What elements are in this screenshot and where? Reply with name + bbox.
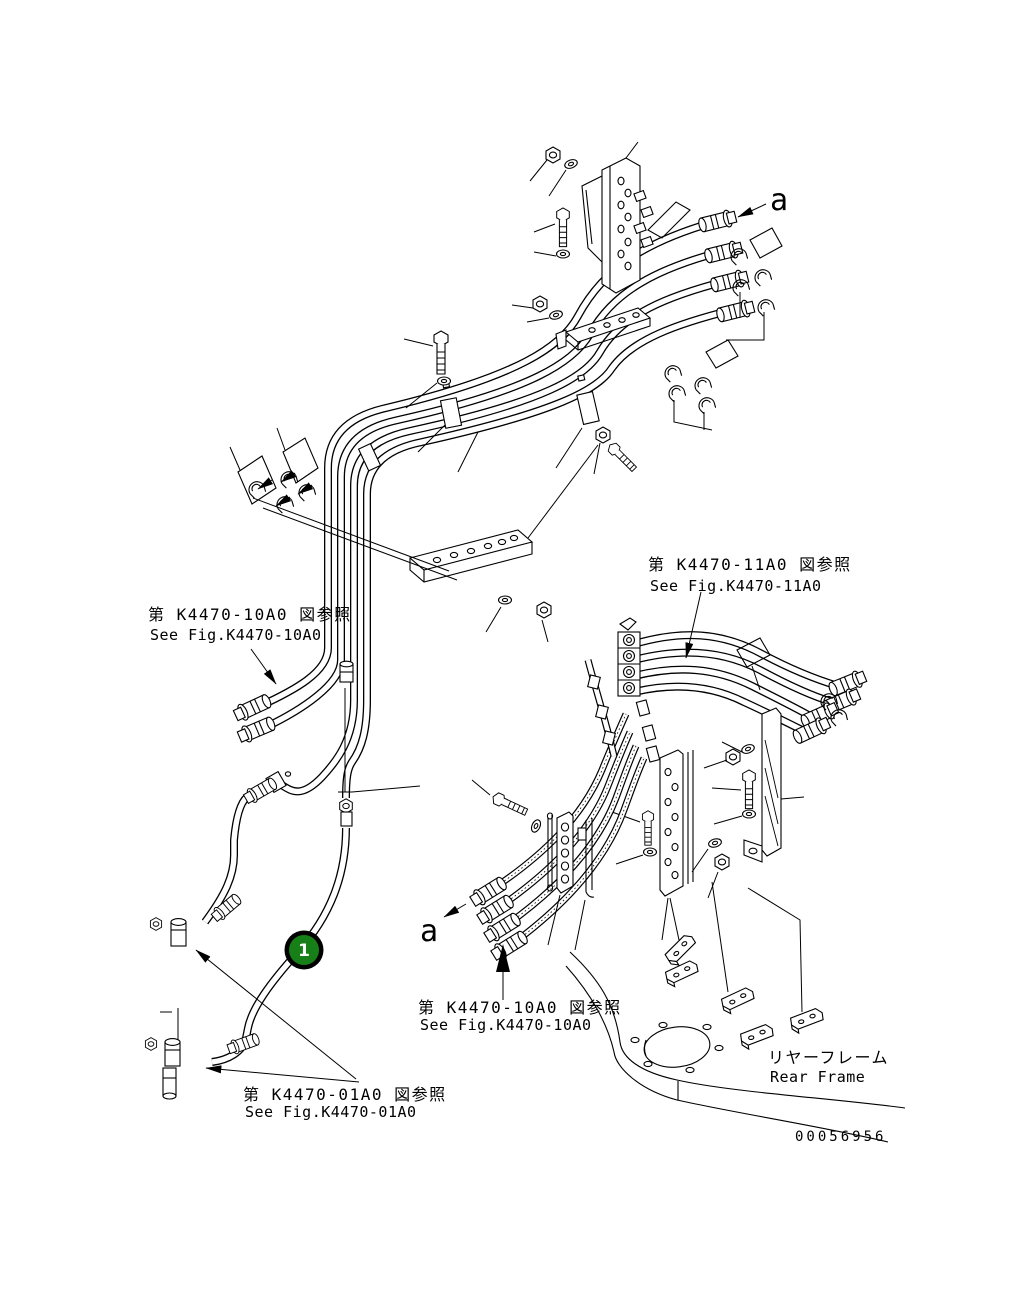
nut: [715, 854, 729, 870]
bolt: [434, 331, 448, 374]
u-clip: [692, 375, 713, 395]
pipe-adapter: [340, 799, 353, 826]
mounting-block: [664, 960, 700, 988]
ref-bottom-center-label-jp: 第 K4470-10A0 図参照: [418, 998, 622, 1017]
washer: [743, 810, 756, 818]
elbow-fitting-lower: [145, 1008, 180, 1099]
ref-right-label-jp: 第 K4470-11A0 図参照: [648, 555, 852, 574]
bolt: [743, 770, 756, 809]
u-clip: [666, 383, 687, 403]
hose-fitting: [697, 208, 737, 234]
parts-diagram-page: 第 K4470-10A0 図参照 See Fig.K4470-10A0 第 K4…: [0, 0, 1032, 1290]
view-letter-top: a: [770, 183, 788, 218]
bolt: [642, 811, 653, 845]
center-bracket: [410, 445, 598, 642]
ref-bottom-left-label-jp: 第 K4470-01A0 図参照: [243, 1085, 447, 1104]
view-letter-bottom: a: [420, 914, 438, 949]
mounting-block: [740, 1024, 775, 1050]
hose-fitting: [709, 268, 749, 294]
ref-left-label-jp: 第 K4470-10A0 図参照: [148, 605, 352, 624]
ref-right-label-en: See Fig.K4470-11A0: [650, 577, 822, 595]
u-clip: [755, 297, 776, 317]
washer: [549, 309, 564, 320]
nut: [537, 602, 551, 618]
callout-box: [238, 456, 276, 504]
ref-bottom-center-label-en: See Fig.K4470-10A0: [420, 1016, 592, 1034]
bolt: [557, 208, 570, 247]
u-clip: [662, 363, 683, 383]
hose-fitting: [703, 239, 743, 265]
hose-fitting: [210, 892, 244, 924]
rear-frame-label-en: Rear Frame: [770, 1068, 865, 1086]
bolt: [491, 791, 529, 817]
u-clip: [752, 267, 773, 287]
mounting-block: [790, 1008, 825, 1034]
piping-diagram: 第 K4470-10A0 図参照 See Fig.K4470-10A0 第 K4…: [0, 0, 1032, 1290]
washer: [530, 818, 543, 833]
right-assembly: [612, 635, 868, 898]
washer: [499, 596, 512, 604]
view-arrow-top: [738, 204, 766, 217]
washer: [708, 837, 723, 848]
clamp-stack: [618, 618, 640, 696]
nut: [546, 147, 560, 163]
mounting-block: [662, 933, 701, 969]
washer: [557, 250, 570, 258]
u-clip: [696, 395, 717, 415]
ref-bottom-left-label-en: See Fig.K4470-01A0: [245, 1103, 417, 1121]
nut: [596, 427, 610, 443]
nut: [533, 296, 547, 312]
frame-opening: [631, 1022, 723, 1072]
callout-box: [706, 340, 738, 368]
washer: [741, 743, 756, 755]
washer: [644, 848, 657, 856]
leader-ref-left: [251, 649, 276, 684]
callout-box: [750, 228, 782, 258]
view-arrow-bottom: [444, 904, 466, 917]
pipe-coupling: [340, 661, 353, 682]
balloon-number: 1: [298, 941, 310, 961]
mounting-block: [720, 987, 756, 1015]
part-number: 00056956: [795, 1129, 886, 1145]
hole-plate: [660, 750, 693, 896]
elbow-fitting-upper: [150, 918, 186, 946]
rear-frame-label-jp: リヤーフレーム: [768, 1048, 889, 1067]
leader-ref-right: [686, 592, 701, 658]
callout-box: [283, 438, 318, 483]
washer: [438, 377, 451, 385]
part-balloon-1[interactable]: 1: [285, 931, 324, 970]
nut: [726, 749, 740, 765]
washer: [564, 158, 579, 170]
ref-left-label-en: See Fig.K4470-10A0: [150, 626, 322, 644]
hose-fitting: [715, 298, 755, 324]
bolt: [606, 441, 638, 473]
